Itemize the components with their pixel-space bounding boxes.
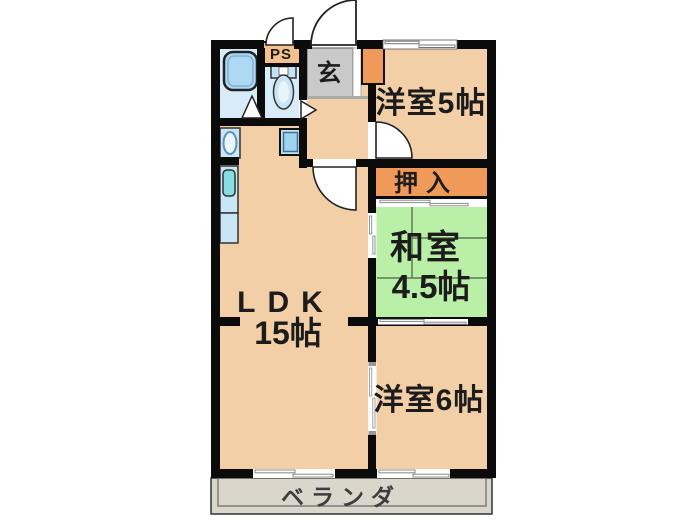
label-ps: PS [270, 46, 292, 63]
door-arc-meterbox [266, 18, 293, 45]
window-western5 [383, 40, 457, 49]
kitchen-counter [220, 166, 238, 243]
kitchen-sink [223, 170, 235, 196]
laundry-pan [280, 129, 301, 155]
label-western5: 洋室5帖 [376, 86, 487, 120]
bathtub [224, 52, 257, 90]
door-arc-entrance [311, 0, 356, 45]
window-western6-balcony [377, 469, 450, 478]
sliding-door-washitsu-west [368, 213, 377, 258]
floor-plan-page: 洋室5帖 押入 和室 4.5帖 洋室6帖 LDK 15帖 ベランダ 玄 PS [0, 0, 700, 525]
door-gap-western5 [368, 122, 376, 159]
label-ldk-size: 15帖 [254, 315, 322, 351]
washbasin [220, 128, 240, 158]
label-genkan: 玄 [317, 59, 341, 87]
genkan-door-strip [353, 48, 361, 97]
shoe-cabinet [362, 45, 384, 84]
label-oshiire: 押入 [394, 170, 458, 197]
label-washitsu-size: 4.5帖 [392, 268, 471, 305]
floor-plan-svg: 洋室5帖 押入 和室 4.5帖 洋室6帖 LDK 15帖 ベランダ 玄 PS [0, 0, 700, 525]
sliding-door-oshiire [376, 199, 487, 207]
window-ldk-balcony [253, 469, 335, 478]
label-veranda: ベランダ [281, 484, 401, 510]
label-western6: 洋室6帖 [374, 383, 485, 417]
sliding-door-washitsu-south [378, 319, 468, 325]
label-washitsu-name: 和室 [390, 228, 462, 267]
genkan-step-edge [307, 96, 368, 99]
